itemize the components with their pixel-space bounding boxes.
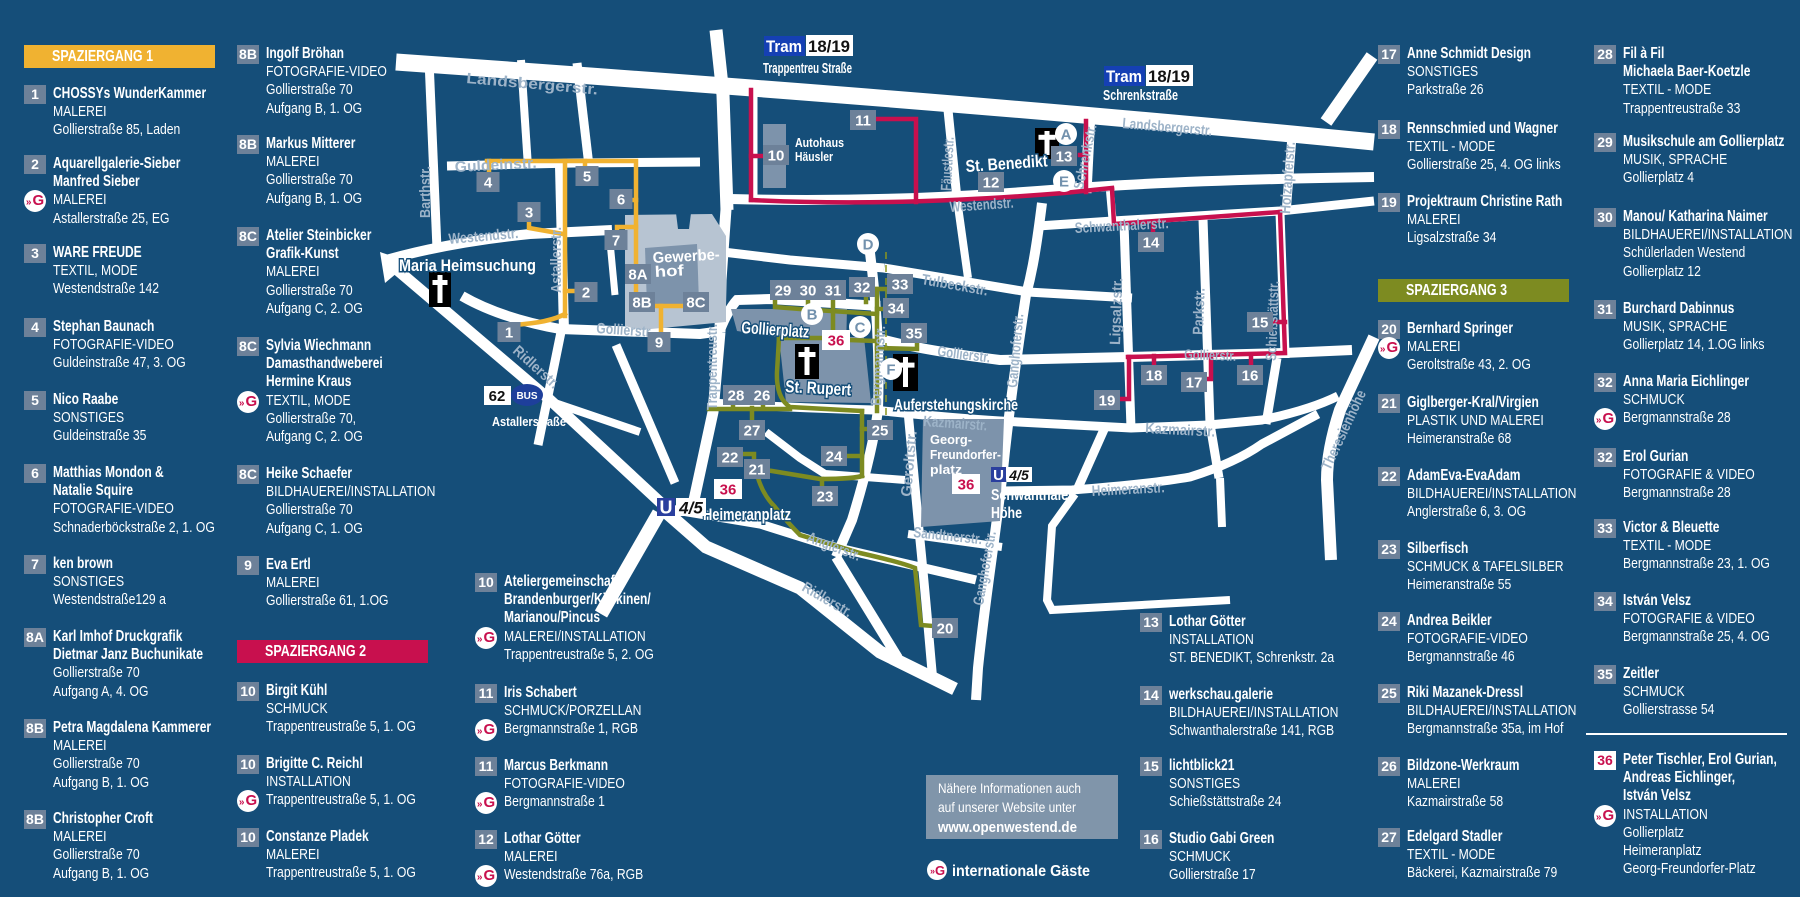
svg-text:B: B: [807, 307, 818, 324]
svg-text:Heimeranplatz: Heimeranplatz: [703, 505, 791, 524]
svg-text:A: A: [1061, 127, 1072, 144]
svg-text:Autohaus: Autohaus: [795, 135, 844, 150]
svg-text:5: 5: [583, 169, 591, 186]
svg-text:D: D: [863, 237, 874, 254]
svg-text:internationale Gäste: internationale Gäste: [952, 863, 1090, 880]
svg-text:36: 36: [828, 333, 845, 350]
svg-text:25: 25: [872, 423, 889, 440]
svg-text:Schwanthaler: Schwanthaler: [991, 487, 1073, 504]
svg-text:Häusler: Häusler: [795, 149, 833, 164]
svg-text:36: 36: [958, 477, 975, 494]
svg-text:16: 16: [1242, 368, 1259, 385]
svg-text:27: 27: [744, 423, 761, 440]
svg-text:Holzapfelstr.: Holzapfelstr.: [1277, 141, 1299, 214]
svg-text:Tram: Tram: [766, 37, 802, 56]
svg-text:30: 30: [800, 283, 817, 300]
svg-text:35: 35: [906, 326, 923, 343]
svg-text:F: F: [886, 362, 895, 379]
svg-text:4/5: 4/5: [1008, 467, 1029, 483]
svg-text:11: 11: [855, 113, 871, 130]
svg-text:2: 2: [582, 285, 590, 302]
svg-text:Schrenkstraße: Schrenkstraße: [1103, 87, 1178, 104]
svg-text:12: 12: [983, 175, 1000, 192]
svg-text:Georg-: Georg-: [930, 432, 972, 447]
svg-text:hof: hof: [654, 262, 685, 281]
svg-text:Auferstehungskirche: Auferstehungskirche: [894, 397, 1018, 414]
svg-text:Gollierstr.: Gollierstr.: [937, 343, 992, 366]
svg-text:www.openwestend.de: www.openwestend.de: [937, 820, 1077, 836]
svg-text:18: 18: [1146, 368, 1163, 385]
svg-text:Fäustlestr.: Fäustlestr.: [938, 136, 958, 191]
svg-text:28: 28: [728, 388, 745, 405]
svg-text:23: 23: [817, 489, 834, 506]
svg-text:14: 14: [1143, 235, 1160, 252]
svg-text:Gollierstr.: Gollierstr.: [596, 320, 654, 341]
svg-text:18/19: 18/19: [808, 37, 850, 56]
svg-text:St. Rupert: St. Rupert: [785, 377, 852, 399]
svg-text:Kazmairstr.: Kazmairstr.: [1145, 420, 1216, 441]
svg-text:Höhe: Höhe: [991, 505, 1022, 522]
svg-text:4/5: 4/5: [678, 498, 703, 517]
svg-text:31: 31: [825, 283, 842, 300]
svg-text:E: E: [1059, 174, 1069, 191]
svg-text:C: C: [855, 320, 866, 337]
svg-text:Ligsalzstr.: Ligsalzstr.: [1107, 278, 1126, 346]
svg-text:BUS: BUS: [516, 391, 537, 402]
svg-text:8B: 8B: [632, 295, 651, 312]
svg-text:Trappentreu Straße: Trappentreu Straße: [763, 60, 852, 77]
svg-text:7: 7: [612, 233, 620, 250]
svg-text:17: 17: [1186, 375, 1203, 392]
svg-text:36: 36: [720, 482, 737, 499]
svg-text:Nähere Informationen auch: Nähere Informationen auch: [938, 780, 1081, 796]
svg-text:20: 20: [937, 621, 954, 638]
svg-text:Astallerstraße: Astallerstraße: [492, 414, 566, 429]
svg-text:Ganghoferstr.: Ganghoferstr.: [1004, 313, 1027, 388]
svg-text:1: 1: [505, 325, 513, 342]
svg-text:22: 22: [722, 450, 739, 467]
svg-text:Westendstr.: Westendstr.: [949, 195, 1014, 216]
svg-text:29: 29: [775, 283, 792, 300]
svg-text:26: 26: [754, 388, 771, 405]
svg-text:32: 32: [854, 280, 871, 297]
svg-text:9: 9: [655, 335, 663, 352]
svg-text:Trappentreustr.: Trappentreustr.: [704, 324, 721, 410]
svg-text:13: 13: [1056, 149, 1073, 166]
svg-text:15: 15: [1252, 315, 1269, 332]
svg-text:Tram: Tram: [1106, 67, 1142, 86]
svg-text:U: U: [993, 467, 1004, 484]
svg-text:21: 21: [749, 462, 766, 479]
svg-text:34: 34: [888, 301, 905, 318]
svg-text:24: 24: [826, 449, 843, 466]
svg-text:8A: 8A: [628, 267, 647, 284]
svg-text:Parkstr.: Parkstr.: [1190, 288, 1209, 336]
svg-text:6: 6: [617, 192, 625, 209]
svg-text:auf unserer Website unter: auf unserer Website unter: [938, 799, 1076, 815]
svg-text:Freundorfer-: Freundorfer-: [930, 447, 1001, 462]
svg-text:3: 3: [525, 205, 533, 222]
svg-text:St. Benedikt: St. Benedikt: [965, 151, 1048, 176]
svg-text:Heimeranstr.: Heimeranstr.: [1091, 479, 1165, 500]
svg-text:Gollierplatz: Gollierplatz: [741, 318, 810, 342]
svg-text:18/19: 18/19: [1148, 67, 1190, 86]
svg-text:Astallerstr.: Astallerstr.: [548, 227, 565, 293]
svg-text:19: 19: [1099, 393, 1116, 410]
svg-text:8C: 8C: [686, 295, 705, 312]
svg-text:Gollierstr.: Gollierstr.: [1184, 346, 1237, 364]
svg-text:10: 10: [768, 148, 785, 165]
svg-text:33: 33: [892, 277, 909, 294]
svg-text:U: U: [660, 497, 673, 517]
svg-text:G: G: [935, 863, 945, 878]
